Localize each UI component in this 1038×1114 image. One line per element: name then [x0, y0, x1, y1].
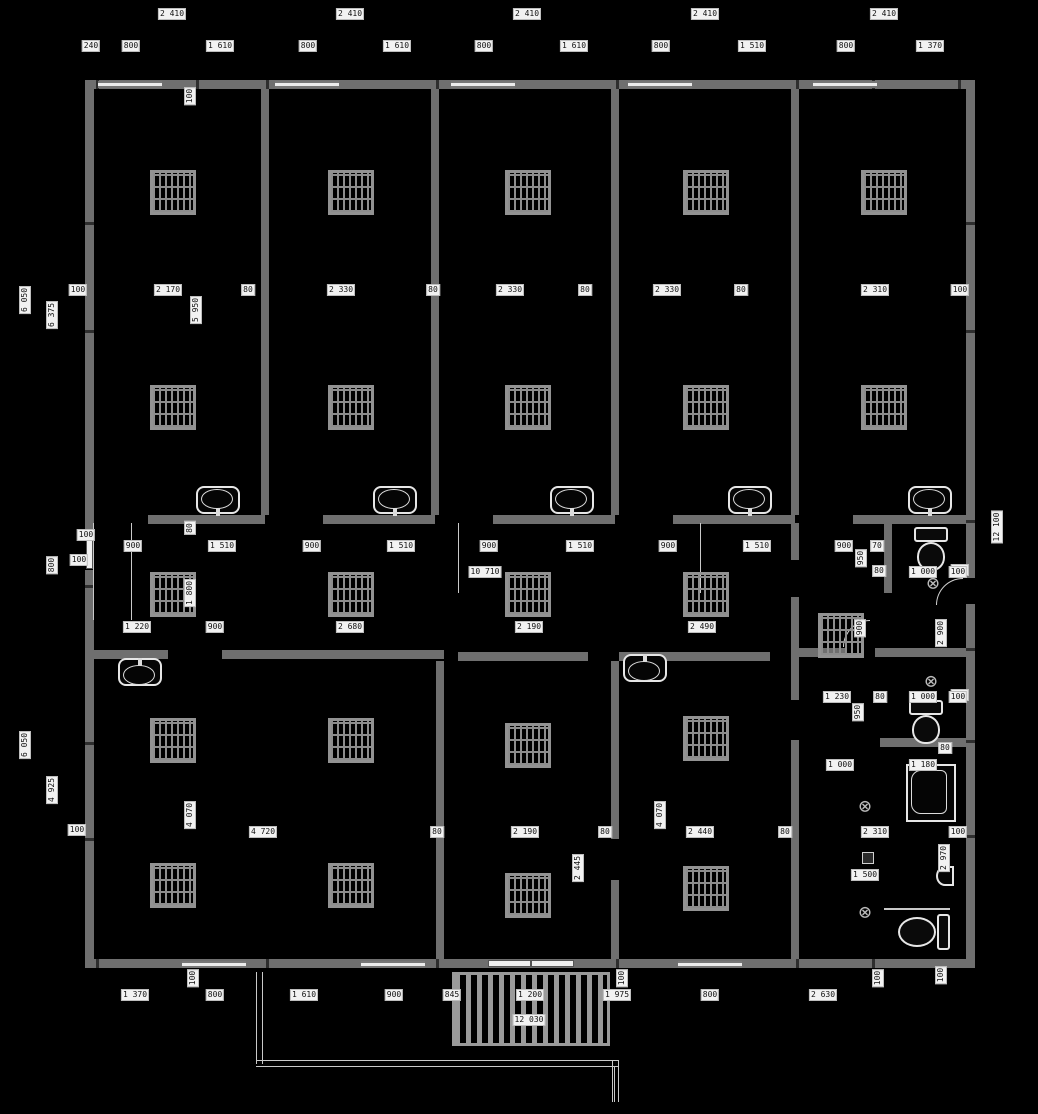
wall-segment [611, 89, 619, 515]
dimension-label: 1 180 [909, 759, 937, 771]
wall-segment [458, 652, 588, 661]
dimension-label: 80 [426, 284, 440, 296]
window-symbol [451, 81, 515, 88]
dimension-label: 800 [46, 556, 58, 574]
dimension-label: 100 [616, 969, 628, 987]
sink-up-icon [623, 654, 667, 684]
wall-joint [436, 959, 439, 968]
wall-segment [493, 515, 615, 524]
dimension-label: 2 170 [154, 284, 182, 296]
wall-joint [196, 80, 199, 89]
wall-segment [791, 597, 799, 700]
dimension-label: 900 [385, 989, 403, 1001]
dimension-label: 2 970 [938, 844, 950, 872]
dimension-label: 100 [184, 87, 196, 105]
grate-icon [328, 385, 374, 430]
wall-segment [323, 515, 435, 524]
grate-icon [683, 572, 729, 617]
grate-icon [505, 873, 551, 918]
dimension-label: 800 [299, 40, 317, 52]
dimension-label: 1 230 [823, 691, 851, 703]
wall-joint [966, 835, 975, 838]
dimension-label: 100 [949, 691, 967, 703]
dimension-label: 950 [855, 549, 867, 567]
dimension-label: 1 610 [560, 40, 588, 52]
dimension-label: 100 [187, 969, 199, 987]
wall-segment [673, 515, 795, 524]
dimension-label: 800 [837, 40, 855, 52]
floor-box-icon [862, 852, 874, 864]
dimension-label: 1 510 [208, 540, 236, 552]
dimension-label: 4 070 [654, 801, 666, 829]
wall-segment [791, 740, 799, 959]
dimension-label: 900 [659, 540, 677, 552]
dimension-label: 100 [949, 566, 967, 578]
grate-icon [505, 385, 551, 430]
door-leaf [531, 960, 574, 967]
window-symbol [628, 81, 692, 88]
sink-down-icon [196, 486, 240, 516]
sink-down-icon [908, 486, 952, 516]
grate-icon [150, 718, 196, 763]
dimension-label: 2 440 [686, 826, 714, 838]
window-symbol [182, 961, 246, 968]
dimension-label: 1 000 [826, 759, 854, 771]
wall-segment [611, 880, 619, 959]
grate-icon [861, 170, 907, 215]
grate-icon [683, 385, 729, 430]
dimension-label: 240 [82, 40, 100, 52]
wall-segment [222, 650, 444, 659]
dimension-label: 1 510 [738, 40, 766, 52]
wall-segment [966, 80, 975, 578]
dimension-label: 2 330 [496, 284, 524, 296]
wall-joint [966, 648, 975, 651]
dimension-label: 80 [778, 826, 792, 838]
dimension-label: 800 [122, 40, 140, 52]
door-leaf [488, 960, 531, 967]
wall-segment [791, 89, 799, 515]
dimension-label: 2 190 [515, 621, 543, 633]
window-symbol [678, 961, 742, 968]
dimension-label: 900 [835, 540, 853, 552]
dimension-label: 2 410 [513, 8, 541, 20]
dimension-label: 900 [480, 540, 498, 552]
dimension-label: 800 [652, 40, 670, 52]
dimension-label: 1 975 [603, 989, 631, 1001]
grate-icon [150, 170, 196, 215]
dimension-label: 100 [70, 554, 88, 566]
dimension-label: 6 050 [19, 731, 31, 759]
wall-joint [966, 222, 975, 225]
grate-icon [505, 723, 551, 768]
dimension-label: 80 [578, 284, 592, 296]
wall-joint [266, 80, 269, 89]
dimension-label: 70 [870, 540, 884, 552]
grate-icon [328, 863, 374, 908]
extension-line [612, 1060, 613, 1102]
wall-joint [616, 80, 619, 89]
dimension-label: 80 [938, 742, 952, 754]
wall-joint [85, 838, 94, 841]
grate-icon [683, 866, 729, 911]
sink-up-icon [118, 658, 162, 688]
floor-plan-canvas: ⊗⊗⊗⊗2 4102 4102 4102 4102 4102408001 610… [0, 0, 1038, 1114]
grate-icon [683, 170, 729, 215]
dimension-label: 1 370 [121, 989, 149, 1001]
dimension-label: 80 [430, 826, 444, 838]
dimension-label: 1 510 [566, 540, 594, 552]
wall-joint [966, 740, 975, 743]
dimension-label: 2 190 [511, 826, 539, 838]
dimension-label: 80 [598, 826, 612, 838]
wall-segment [148, 515, 265, 524]
wall-joint [85, 742, 94, 745]
drain-icon: ⊗ [855, 902, 875, 922]
dimension-label: 100 [872, 969, 884, 987]
dimension-label: 1 800 [184, 579, 196, 607]
wall-segment [875, 648, 966, 657]
dimension-label: 6 050 [19, 286, 31, 314]
extension-line [256, 1060, 618, 1061]
drain-icon: ⊗ [855, 796, 875, 816]
dimension-label: 1 610 [206, 40, 234, 52]
dimension-label: 800 [475, 40, 493, 52]
grate-icon [505, 170, 551, 215]
dimension-label: 2 900 [935, 619, 947, 647]
dimension-label: 100 [68, 824, 86, 836]
dimension-label: 2 630 [809, 989, 837, 1001]
sink-down-icon [550, 486, 594, 516]
grab-bar-icon [884, 908, 950, 910]
dimension-label: 100 [77, 529, 95, 541]
wall-segment [966, 604, 975, 968]
window-symbol [361, 961, 425, 968]
wall-joint [958, 80, 961, 89]
entrance-porch-deck [452, 972, 610, 1046]
wall-joint [872, 959, 875, 968]
dimension-label: 1 510 [387, 540, 415, 552]
wall-joint [85, 330, 94, 333]
wall-segment [884, 523, 892, 593]
dimension-label: 2 330 [653, 284, 681, 296]
dimension-label: 2 410 [870, 8, 898, 20]
dimension-label: 5 950 [190, 296, 202, 324]
extension-line [614, 1066, 615, 1102]
dimension-label: 900 [854, 619, 866, 637]
dimension-label: 6 375 [46, 301, 58, 329]
dimension-label: 12 100 [991, 511, 1003, 544]
grate-icon [328, 170, 374, 215]
wall-segment [853, 515, 966, 524]
wall-joint [966, 330, 975, 333]
sink-down-icon [373, 486, 417, 516]
grate-icon [861, 385, 907, 430]
dimension-label: 1 610 [383, 40, 411, 52]
dimension-label: 900 [303, 540, 321, 552]
grate-icon [328, 572, 374, 617]
dimension-label: 1 510 [743, 540, 771, 552]
wall-joint [966, 520, 975, 523]
grate-icon [150, 863, 196, 908]
dimension-label: 80 [184, 521, 196, 535]
toilet-v-icon [908, 700, 944, 746]
dimension-label: 80 [734, 284, 748, 296]
dimension-label: 1 370 [916, 40, 944, 52]
wall-segment [261, 89, 269, 515]
wall-joint [85, 222, 94, 225]
dimension-label: 100 [935, 966, 947, 984]
extension-line [458, 523, 459, 593]
extension-line [256, 1066, 618, 1067]
dimension-label: 1 220 [123, 621, 151, 633]
dimension-label: 12 030 [513, 1014, 546, 1026]
wall-segment [611, 661, 619, 839]
dimension-label: 4 070 [184, 801, 196, 829]
wall-joint [266, 959, 269, 968]
extension-line [131, 523, 132, 620]
wall-joint [796, 80, 799, 89]
dimension-label: 100 [951, 284, 969, 296]
dimension-label: 1 000 [909, 566, 937, 578]
dimension-label: 2 680 [336, 621, 364, 633]
grate-icon [505, 572, 551, 617]
dimension-label: 1 610 [290, 989, 318, 1001]
dimension-label: 2 310 [861, 284, 889, 296]
wall-segment [431, 89, 439, 515]
dimension-label: 845 [443, 989, 461, 1001]
extension-line [262, 972, 263, 1064]
dimension-label: 2 490 [688, 621, 716, 633]
dimension-label: 900 [206, 621, 224, 633]
grate-icon [328, 718, 374, 763]
dimension-label: 2 410 [336, 8, 364, 20]
grate-icon [150, 385, 196, 430]
toilet-h-icon [898, 914, 950, 950]
dimension-label: 1 200 [516, 989, 544, 1001]
dimension-label: 10 710 [469, 566, 502, 578]
bathtub-icon [906, 764, 956, 822]
dimension-label: 80 [872, 565, 886, 577]
dimension-label: 2 410 [158, 8, 186, 20]
dimension-label: 2 410 [691, 8, 719, 20]
wall-segment [85, 80, 94, 533]
dimension-label: 4 720 [249, 826, 277, 838]
window-symbol [98, 81, 162, 88]
dimension-label: 2 330 [327, 284, 355, 296]
grate-icon [683, 716, 729, 761]
wall-segment [85, 570, 94, 968]
sink-down-icon [728, 486, 772, 516]
wall-joint [96, 959, 99, 968]
dimension-label: 100 [949, 826, 967, 838]
dimension-label: 800 [206, 989, 224, 1001]
window-symbol [813, 81, 877, 88]
dimension-label: 1 500 [851, 869, 879, 881]
dimension-label: 4 925 [46, 776, 58, 804]
extension-line [618, 1060, 619, 1102]
dimension-label: 80 [873, 691, 887, 703]
dimension-label: 80 [241, 284, 255, 296]
wall-joint [616, 959, 619, 968]
extension-line [256, 972, 257, 1064]
wall-segment [436, 661, 444, 959]
dimension-label: 900 [124, 540, 142, 552]
dimension-label: 950 [852, 703, 864, 721]
wall-joint [796, 959, 799, 968]
window-symbol [275, 81, 339, 88]
wall-joint [436, 80, 439, 89]
dimension-label: 2 310 [861, 826, 889, 838]
dimension-label: 100 [69, 284, 87, 296]
drain-icon: ⊗ [921, 671, 941, 691]
wall-segment [791, 523, 799, 560]
dimension-label: 800 [701, 989, 719, 1001]
dimension-label: 2 445 [572, 854, 584, 882]
dimension-label: 1 000 [909, 691, 937, 703]
